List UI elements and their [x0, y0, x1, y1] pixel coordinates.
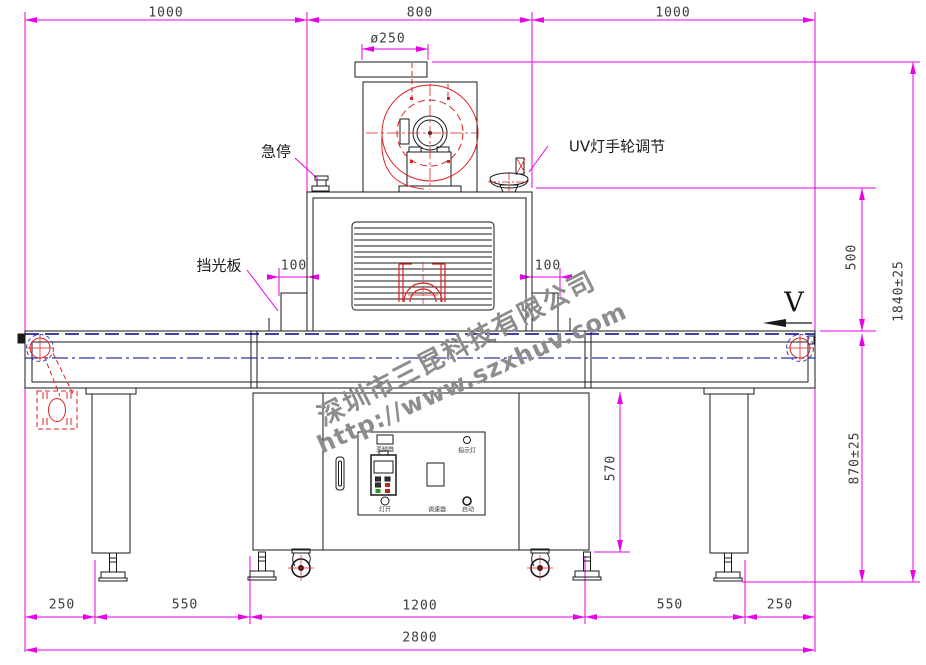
dim-belt-height: 870±25	[848, 432, 863, 485]
drive-roller-right	[787, 335, 814, 362]
dim-top-middle: 800	[407, 6, 433, 21]
dim-overall-width: 2800	[402, 631, 437, 646]
machine-structure	[18, 62, 815, 581]
indicator-light	[464, 437, 471, 444]
label-emergency-stop: 急停	[261, 141, 291, 162]
buzzer-box	[377, 435, 393, 444]
vfd-inverter	[371, 451, 396, 495]
leveling-foot	[248, 552, 276, 580]
uv-machine-drawing: 1000 800 1000 ø250 100 100 500 1840±25 8…	[0, 0, 926, 665]
label-belt-direction: V	[784, 288, 804, 319]
blower-assembly	[355, 62, 477, 192]
shield-leader	[247, 270, 278, 311]
label-lamp-switch: 灯开	[379, 505, 391, 514]
dim-bottom-4: 550	[657, 598, 683, 613]
dim-bottom-2: 550	[172, 598, 198, 613]
dim-overall-height: 1840±25	[892, 260, 907, 322]
dim-top-right: 1000	[655, 6, 690, 21]
label-light-shield: 挡光板	[196, 255, 241, 276]
dim-lamp-height: 500	[845, 244, 860, 270]
label-indicator: 指示灯	[458, 446, 476, 455]
emergency-stop-button	[312, 176, 329, 191]
leveling-foot	[99, 553, 127, 581]
label-uv-handwheel: UV灯手轮调节	[569, 136, 665, 157]
dim-clearance-left: 100	[281, 259, 307, 274]
label-inverter: 变频器	[376, 445, 394, 454]
belt-motor	[37, 353, 77, 429]
caster-wheel	[288, 549, 314, 581]
leveling-foot	[573, 552, 601, 580]
label-speed-controller: 调速器	[428, 505, 446, 514]
direction-arrow	[763, 319, 812, 327]
door-handle	[336, 457, 344, 490]
speed-knob	[427, 463, 444, 486]
dim-bottom-5: 250	[767, 598, 793, 613]
control-cabinet	[253, 393, 589, 550]
dim-flange-diameter: ø250	[370, 32, 405, 47]
label-start: 启动	[462, 505, 474, 514]
dim-bottom-3: 1200	[402, 599, 437, 614]
caster-wheel	[527, 549, 553, 581]
dim-clearance-right: 100	[535, 259, 561, 274]
dim-cabinet-height: 570	[604, 455, 619, 481]
dim-bottom-1: 250	[49, 598, 75, 613]
left-leg	[86, 388, 136, 553]
light-shield-left	[269, 293, 307, 331]
drive-roller-left	[27, 335, 54, 362]
dim-top-left: 1000	[148, 6, 183, 21]
leveling-foot	[714, 553, 742, 581]
right-leg	[704, 388, 754, 553]
